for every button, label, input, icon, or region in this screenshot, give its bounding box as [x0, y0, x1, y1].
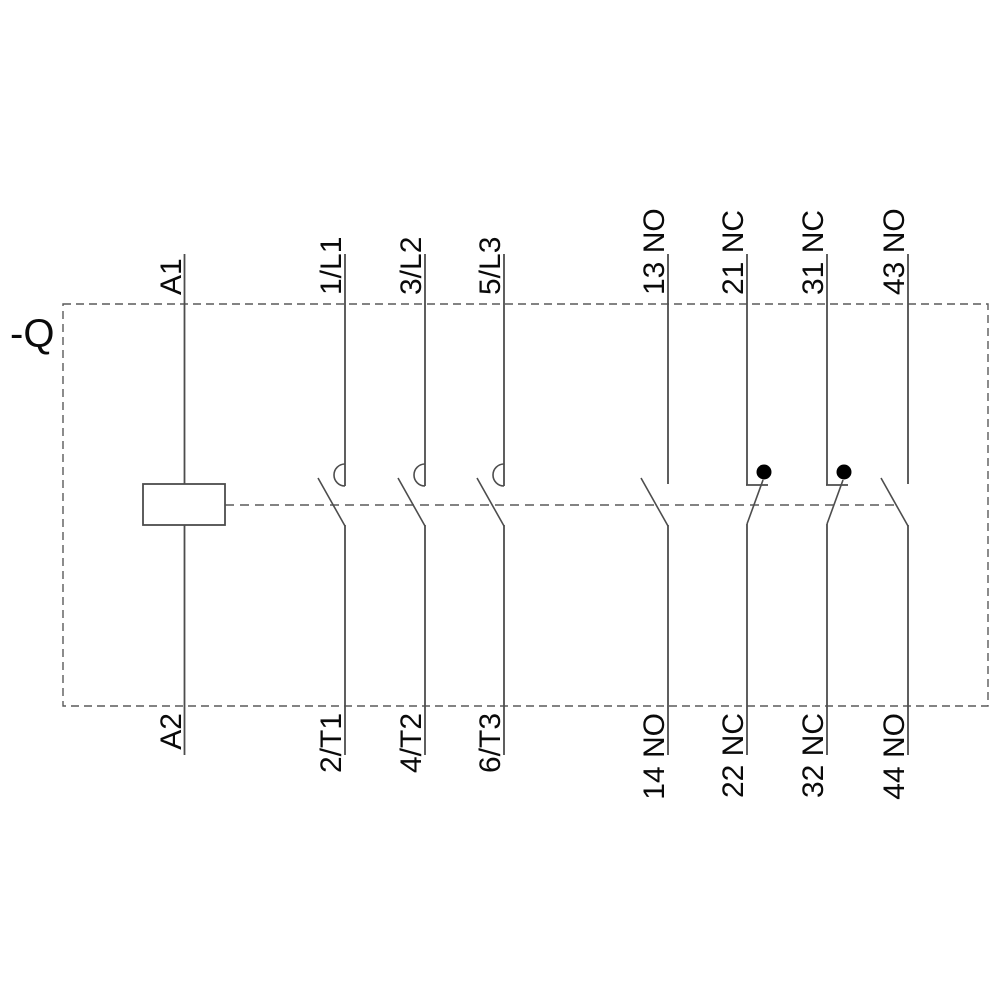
terminal-label-bottom: 22 NC	[717, 713, 750, 798]
nc-contact-dot	[837, 465, 852, 480]
terminal-label-top: 21 NC	[717, 210, 750, 295]
contactor-schematic-diagram: -Q A1 A2 1/L1 2/T1 3/L2 4/T2 5/L3 6/T3	[0, 0, 1000, 1000]
terminal-label-top: 1/L1	[315, 237, 348, 295]
terminal-label-top: 13 NO	[638, 208, 671, 295]
terminal-label-bottom: 4/T2	[395, 713, 428, 773]
terminal-label-a2: A2	[155, 713, 188, 750]
aux-no-contact-43-44: 43 NO 44 NO	[878, 208, 911, 799]
terminal-label-bottom: 6/T3	[474, 713, 507, 773]
contact-blade	[881, 478, 908, 526]
terminal-label-top: 43 NO	[878, 208, 911, 295]
terminal-label-bottom: 14 NO	[638, 713, 671, 800]
terminal-label-top: 5/L3	[474, 237, 507, 295]
coil-symbol	[143, 484, 225, 525]
terminal-label-bottom: 44 NO	[878, 713, 911, 800]
terminal-label-bottom: 2/T1	[315, 713, 348, 773]
device-designation-label: -Q	[10, 312, 54, 356]
terminal-label-top: 3/L2	[395, 237, 428, 295]
contact-blade	[641, 478, 668, 526]
aux-no-contact-13-14: 13 NO 14 NO	[638, 208, 671, 799]
coil-branch: A1 A2	[143, 254, 225, 755]
main-contact-arc	[493, 464, 504, 486]
terminal-label-top: 31 NC	[797, 210, 830, 295]
contact-blade	[747, 480, 763, 524]
contact-blade	[827, 480, 843, 524]
nc-contact-dot	[757, 465, 772, 480]
aux-nc-contact-31-32: 31 NC 32 NC	[797, 210, 852, 798]
schematic-page: -Q A1 A2 1/L1 2/T1 3/L2 4/T2 5/L3 6/T3	[0, 0, 1000, 1000]
main-contact-arc	[414, 464, 425, 486]
terminal-label-a1: A1	[155, 258, 188, 295]
aux-nc-contact-21-22: 21 NC 22 NC	[717, 210, 772, 798]
main-contact-arc	[334, 464, 345, 486]
terminal-label-bottom: 32 NC	[797, 713, 830, 798]
